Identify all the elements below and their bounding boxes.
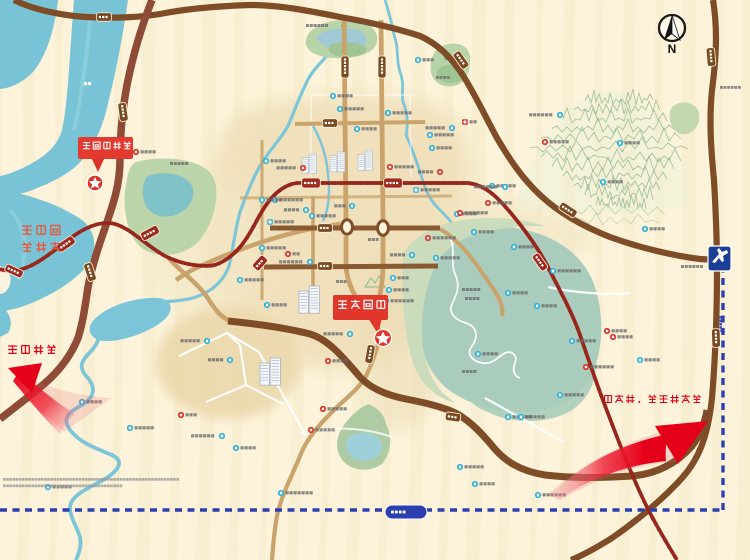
svg-text:N: N (668, 42, 677, 56)
